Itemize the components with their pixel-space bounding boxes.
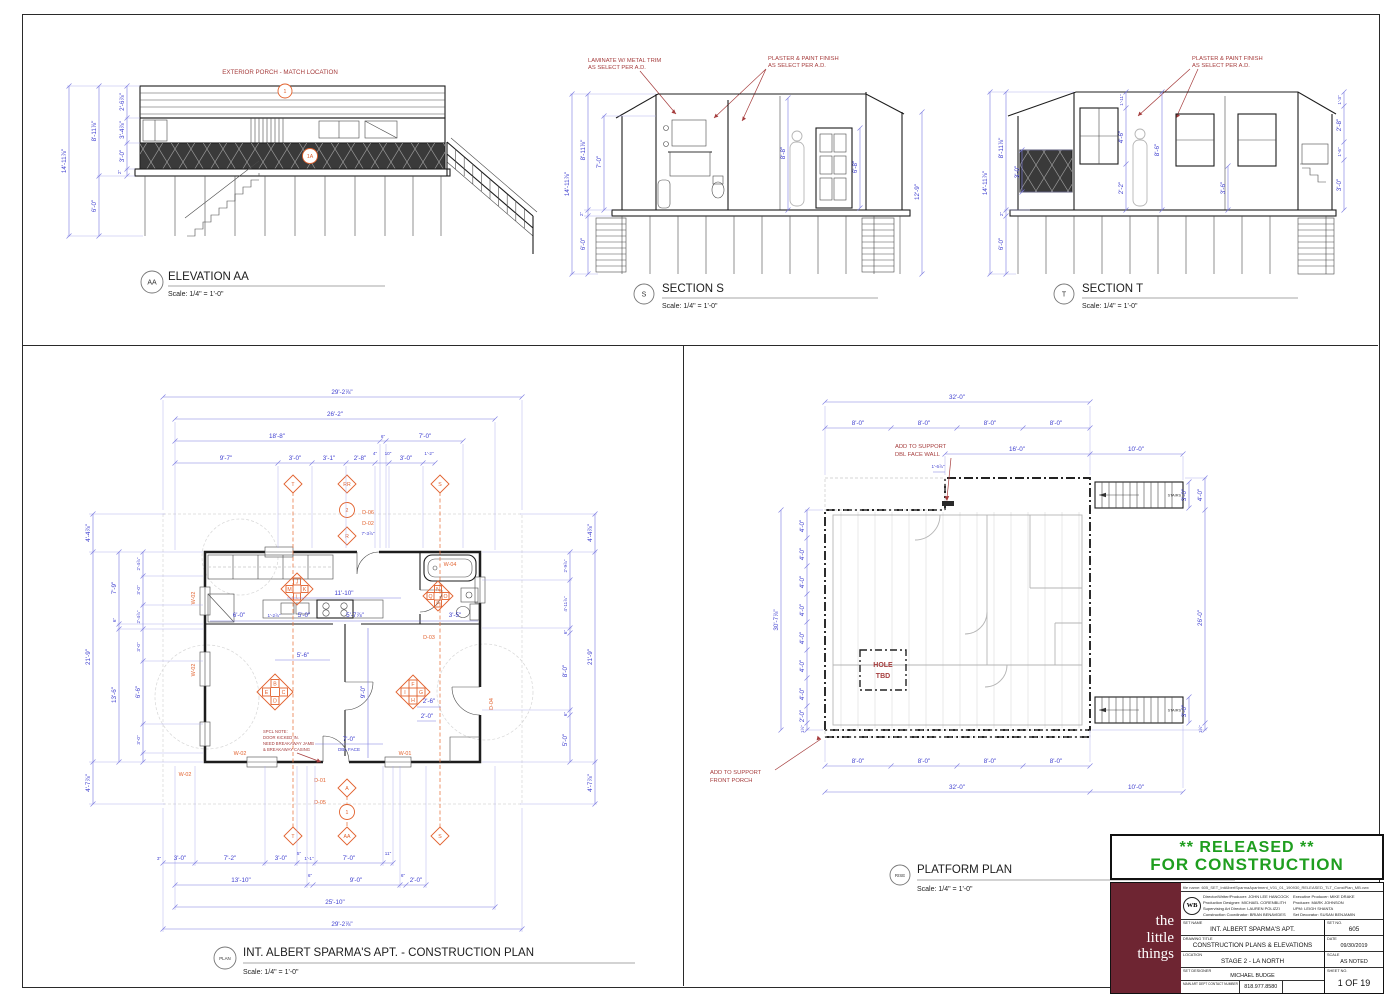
dim-label: 6'-6" — [135, 686, 142, 699]
dim-label: 13'-6" — [111, 687, 118, 703]
hole-tbd: HOLE TBD — [860, 650, 906, 690]
svg-text:C: C — [282, 690, 286, 696]
credits-right: Executive Producer: MIKE DRAKEProducer: … — [1293, 894, 1383, 918]
svg-text:HOLE: HOLE — [873, 662, 893, 669]
dim-label: 5'-0" — [298, 612, 311, 619]
released-line2: FOR CONSTRUCTION — [1150, 856, 1344, 874]
section-marker-s-bottom: S — [438, 834, 442, 840]
dim-label: 7'-0" — [343, 736, 356, 743]
note-plaster: PLASTER & PAINT FINISH — [768, 56, 839, 62]
dim-label: 3'-0" — [1336, 179, 1343, 192]
dim-label: 2'-4⅞" — [136, 610, 141, 623]
dim-label: 1'-11" — [1119, 94, 1124, 106]
dim-label: 29'-2⅞" — [331, 921, 352, 928]
released-stamp: ** RELEASED ** FOR CONSTRUCTION — [1110, 834, 1384, 880]
dim-label: 4'-0" — [799, 548, 806, 561]
drawing-scale: Scale: 1/4" = 1'-0" — [168, 291, 224, 298]
dim-label: 7'-0" — [343, 855, 356, 862]
svg-text:J: J — [296, 579, 299, 585]
dim-label: 11" — [385, 851, 392, 856]
elevation-marker-aa: AA — [344, 834, 351, 840]
dim-label: 2'-0" — [421, 713, 434, 720]
elevation-dimensions: 14'-11⅞" 8'-11⅞" 6'-0" 2'-6⅞" 3'-4⅞" 3'-… — [61, 84, 143, 239]
dim-label: 14'-11⅞" — [982, 171, 989, 195]
dim-label: 10" — [385, 451, 392, 456]
note-plaster: PLASTER & PAINT FINISH — [1192, 56, 1263, 62]
dim-label: 8'-6" — [1154, 144, 1161, 157]
dim-label: 4'-4⅞" — [587, 524, 594, 542]
section-t-linework — [1008, 92, 1336, 274]
note-laminate: LAMINATE W/ METAL TRIM — [588, 58, 661, 64]
drawing-title: SECTION S — [662, 283, 724, 295]
drawing-title: SECTION T — [1082, 283, 1143, 295]
field-scale: SCALEAS NOTED — [1325, 952, 1383, 968]
dim-label: 1'-1" — [304, 856, 314, 861]
dim-label: 2" — [579, 212, 584, 217]
added-support-block — [942, 501, 954, 506]
platform-dimensions: 32'-0" 8'-0" 8'-0" 8'-0" 8'-0" 16'-0" 10… — [773, 394, 1208, 795]
tag-d04: D-04 — [489, 698, 495, 710]
field-set-no: SET NO.605 — [1325, 920, 1383, 936]
note-front-porch: ADD TO SUPPORT — [710, 770, 762, 776]
panel-divider-horizontal — [22, 345, 1378, 346]
dim-label: 9'-7" — [220, 455, 233, 462]
dim-label: 4'-0" — [799, 660, 806, 673]
stairs-top: STAIRS — [1095, 482, 1183, 508]
dim-label: 30'-7⅞" — [773, 609, 780, 630]
dim-label: 3'-0" — [136, 642, 141, 652]
dim-label: 2'-6" — [423, 698, 436, 705]
dim-label: 32'-0" — [949, 784, 965, 791]
dim-label: 21'-9" — [85, 649, 92, 665]
note-plaster-2: AS SELECT PER A.D. — [1192, 63, 1250, 69]
dim-label: 18'-8" — [269, 433, 285, 440]
dim-label: 1½" — [1197, 725, 1203, 733]
dim-label: 10'-0" — [1128, 784, 1144, 791]
platform-plan-drawing: HOLE TBD STAIRS STAIRS ADD TO SUPPORT DB… — [695, 370, 1335, 910]
dim-label: 9'-0" — [350, 877, 363, 884]
drawing-tag: S — [642, 292, 647, 299]
dim-label: 12'-9" — [914, 184, 921, 200]
dim-label: 8'-0" — [562, 665, 569, 678]
detail-marker-a: A — [345, 786, 349, 792]
dim-label: 9'-0" — [360, 686, 367, 699]
drawing-title: ELEVATION AA — [168, 271, 249, 283]
dim-label: 6" — [308, 873, 313, 878]
drawing-tag: PLAN — [219, 956, 230, 961]
platform-outline — [825, 478, 1090, 737]
finish-cluster-bath: NQOP — [423, 581, 453, 611]
file-name: file name: 605_SET_IntAlbertSparmaApartm… — [1181, 883, 1383, 892]
dim-label: 4'-0" — [799, 576, 806, 589]
section-s-linework — [596, 92, 910, 274]
dim-label: 4'-0" — [799, 520, 806, 533]
dim-label: 6" — [563, 712, 568, 717]
detail-marker-r: R — [345, 534, 349, 540]
svg-text:I: I — [404, 690, 405, 696]
svg-text:SPCL NOTE:: SPCL NOTE: — [263, 729, 288, 734]
tag-w02: W-02 — [179, 772, 192, 778]
tag-w02: W-02 — [234, 751, 247, 757]
section-t-notes: PLASTER & PAINT FINISH AS SELECT PER A.D… — [1138, 56, 1263, 118]
drawing-scale: Scale: 1/4" = 1'-0" — [662, 303, 718, 310]
svg-text:N: N — [436, 587, 440, 593]
dim-label: DBL FACE — [338, 747, 360, 752]
note-plaster-2: AS SELECT PER A.D. — [768, 63, 826, 69]
dim-label: 1'-2" — [424, 451, 434, 456]
section-s-notes: LAMINATE W/ METAL TRIM AS SELECT PER A.D… — [588, 56, 839, 121]
dim-label: 25'-10" — [325, 899, 345, 906]
dim-label: 8'-8" — [780, 147, 787, 160]
dim-label: 6" — [112, 618, 117, 623]
dim-label: 2'-0" — [799, 710, 806, 723]
dim-label: 2" — [117, 170, 122, 175]
dim-label: 4'-0" — [799, 632, 806, 645]
drawing-tag: T — [1062, 292, 1067, 299]
svg-text:Q: Q — [428, 594, 432, 600]
svg-text:TBD: TBD — [876, 673, 890, 680]
dim-label: 8'-0" — [918, 420, 931, 427]
elevation-linework — [135, 86, 537, 254]
dim-label: 8'-11⅞" — [580, 140, 587, 161]
dim-label: 1½" — [799, 725, 805, 733]
elevation-aa-drawing: EXTERIOR PORCH - MATCH LOCATION 1 1A 14'… — [55, 58, 555, 313]
section-s-title: S SECTION S Scale: 1/4" = 1'-0" — [634, 283, 878, 310]
dim-label: 8'-0" — [984, 758, 997, 765]
svg-text:K: K — [303, 587, 307, 593]
dim-label: 3'-0" — [289, 455, 302, 462]
dim-label: 2'-9⅞" — [563, 559, 568, 572]
dim-label: 6'-8" — [852, 161, 859, 174]
field-date: DATE09/30/2019 — [1325, 936, 1383, 952]
svg-text:DOOR KICKED IN.: DOOR KICKED IN. — [263, 735, 299, 740]
dim-label: 2'-8" — [1336, 119, 1343, 132]
dim-label: 3'-5" — [449, 612, 462, 619]
dim-label: 3'-0" — [136, 585, 141, 595]
dim-label: 7'-0" — [419, 433, 432, 440]
field-sheet-no: SHEET NO.1 OF 19 — [1325, 968, 1383, 992]
dim-label: 7'-9" — [111, 582, 118, 595]
svg-text:F: F — [411, 682, 414, 688]
panel-divider-vertical — [683, 345, 684, 986]
tag-d02: D-02 — [362, 521, 374, 527]
drawing-scale: Scale: 1/4" = 1'-0" — [243, 969, 299, 976]
dim-label: 1'-6" — [1337, 147, 1342, 157]
dim-label: 13'-10" — [231, 877, 251, 884]
svg-text:& BREAKAWAY CASING: & BREAKAWAY CASING — [263, 747, 310, 752]
dim-label: 6'-0" — [91, 200, 98, 213]
dim-label: 11'-10" — [334, 590, 353, 597]
dim-label: 6" — [563, 630, 568, 635]
dim-label: 1'-6⅞" — [932, 464, 945, 469]
title-block: ** RELEASED ** FOR CONSTRUCTION the litt… — [1110, 834, 1384, 994]
svg-text:L: L — [296, 594, 299, 600]
svg-text:NEED BREAKAWAY JAMB: NEED BREAKAWAY JAMB — [263, 741, 314, 746]
released-line1: ** RELEASED ** — [1180, 840, 1315, 857]
dim-label: 26'-0" — [1197, 610, 1204, 626]
drawing-scale: Scale: 1/4" = 1'-0" — [1082, 303, 1138, 310]
dim-label: 10'-0" — [1128, 446, 1144, 453]
dim-label: 4'-4⅞" — [85, 524, 92, 542]
construction-plan-drawing: T RR 2 R S A 1 AA T S JMKL NQOP BECD FIG… — [35, 352, 665, 992]
dim-label: 5" — [297, 851, 302, 856]
note-dbl-face: ADD TO SUPPORT — [895, 444, 947, 450]
drawing-scale: Scale: 1/4" = 1'-0" — [917, 886, 973, 893]
detail-marker-rr: RR — [343, 482, 351, 488]
note-front-porch-2: FRONT PORCH — [710, 778, 752, 784]
dim-label: 3'-0" — [1181, 489, 1188, 502]
tag-w01: W-01 — [399, 751, 412, 757]
tag-d01: D-01 — [314, 778, 326, 784]
dim-label: 4'-7⅞" — [85, 774, 92, 792]
field-contact: MAIN ART DEPT CONTACT NUMBER 818.977.858… — [1181, 981, 1324, 993]
dim-label: 3'-4⅞" — [119, 121, 126, 139]
tag-d06: D-06 — [362, 510, 374, 516]
dim-label: 3'-0" — [174, 855, 187, 862]
dim-label: 4'-11⅞" — [563, 596, 568, 612]
dim-label: 21'-9" — [587, 649, 594, 665]
credits-row: WB Director/Writer/Producer: JOHN LEE HA… — [1181, 892, 1383, 920]
dim-label: 5'-7⅞" — [346, 612, 364, 619]
dim-label: 3'-0" — [119, 150, 126, 163]
platform-notes: ADD TO SUPPORT DBL FACE WALL ADD TO SUPP… — [710, 444, 951, 784]
dim-label: 3'-0" — [1181, 705, 1188, 718]
dim-label: 32'-0" — [949, 394, 965, 401]
tag-d03: D-03 — [423, 635, 435, 641]
dim-label: 3'-0" — [400, 455, 413, 462]
platform-joists — [841, 512, 1079, 728]
dim-label: 2" — [999, 212, 1004, 217]
dim-label: 2'-0" — [410, 877, 423, 884]
section-t-title: T SECTION T Scale: 1/4" = 1'-0" — [1054, 283, 1298, 310]
dim-label: 3'-0" — [275, 855, 288, 862]
section-t-drawing: PLASTER & PAINT FINISH AS SELECT PER A.D… — [980, 48, 1360, 310]
tag-w02: W-02 — [191, 592, 197, 605]
stairs-label: STAIRS — [1168, 494, 1182, 498]
dim-label: 3" — [157, 856, 162, 861]
construction-plan-title: PLAN INT. ALBERT SPARMA'S APT. - CONSTRU… — [214, 947, 635, 976]
svg-text:P: P — [436, 601, 440, 607]
svg-text:M: M — [287, 587, 291, 593]
dim-label: 3'-0" — [136, 735, 141, 745]
dim-label: 6'-0" — [580, 238, 587, 251]
dim-label: 8'-0" — [984, 420, 997, 427]
tag-d05: D-05 — [314, 800, 326, 806]
dim-label: 8'-11⅞" — [998, 138, 1005, 159]
dim-label: 5'-0" — [562, 734, 569, 747]
dim-label: 4" — [373, 451, 378, 456]
dim-label: 7'-3⅞" — [362, 531, 375, 536]
note-exterior-porch: EXTERIOR PORCH - MATCH LOCATION — [222, 69, 338, 76]
dim-label: 26'-2" — [327, 411, 343, 418]
tag-w04: W-04 — [444, 562, 457, 568]
dim-label: 8'-0" — [1050, 420, 1063, 427]
dim-label: 4'-6" — [1118, 131, 1125, 144]
dim-label: 3'-1" — [323, 455, 336, 462]
field-set-designer: SET DESIGNERMICHAEL BUDGE — [1181, 968, 1324, 981]
dim-label: 1'-3" — [1337, 95, 1342, 105]
dim-label: 7'-0" — [596, 156, 603, 169]
drawing-tag: RISE — [895, 873, 905, 878]
dim-label: 4'-0" — [799, 688, 806, 701]
plan-dimensions: 29'-2⅞" 26'-2" 18'-8" 6" 7'-0" 9'-7" 3'-… — [85, 389, 598, 932]
dim-label: 7'-2" — [224, 855, 237, 862]
svg-text:G: G — [419, 690, 423, 696]
elevation-title: AA ELEVATION AA Scale: 1/4" = 1'-0" — [141, 271, 385, 298]
dim-label: 2'-4⅞" — [136, 557, 141, 570]
drawing-title: INT. ALBERT SPARMA'S APT. - CONSTRUCTION… — [243, 947, 534, 959]
dim-label: 16'-0" — [1009, 446, 1025, 453]
dim-label: 14'-11⅞" — [61, 149, 68, 173]
svg-text:B: B — [273, 681, 277, 687]
dim-label: 8'-0" — [1050, 758, 1063, 765]
finish-cluster-living: BECD — [257, 674, 293, 710]
dim-label: 5'-6" — [297, 652, 310, 659]
credits-left: Director/Writer/Producer: JOHN LEE HANCO… — [1203, 894, 1293, 918]
field-location: LOCATIONSTAGE 2 - LA NORTH — [1181, 952, 1324, 968]
field-drawing-title: DRAWING TITLECONSTRUCTION PLANS & ELEVAT… — [1181, 936, 1324, 952]
field-set-name: SET NAMEINT. ALBERT SPARMA'S APT. — [1181, 920, 1324, 936]
dim-label: 4'-0" — [1197, 489, 1204, 502]
dim-label: 1'-2⅞" — [268, 613, 281, 618]
dim-label: 8'-0" — [918, 758, 931, 765]
dim-label: 4'-7⅞" — [587, 774, 594, 792]
dim-label: 6" — [381, 434, 386, 439]
tag-w02: W-02 — [191, 664, 197, 677]
dim-label: 14'-11⅞" — [564, 172, 571, 196]
dim-label: 8'-0" — [852, 758, 865, 765]
stairs-label: STAIRS — [1168, 709, 1182, 713]
svg-text:D: D — [273, 698, 277, 704]
section-marker-s: S — [438, 482, 442, 488]
dim-label: 6'-0" — [233, 612, 246, 619]
dim-label: 3'-0" — [1014, 166, 1021, 179]
little-things-logo: the little things — [1111, 883, 1181, 993]
dim-label: 6'-0" — [998, 238, 1005, 251]
note-laminate-2: AS SELECT PER A.D. — [588, 65, 646, 71]
svg-text:O: O — [443, 594, 447, 600]
wb-logo: WB — [1181, 897, 1203, 915]
svg-text:H: H — [411, 698, 415, 704]
dim-label: 2'-8" — [354, 455, 367, 462]
dim-label: 2'-6⅞" — [119, 93, 126, 111]
drawing-tag: AA — [147, 280, 157, 287]
dim-label: 29'-2⅞" — [331, 389, 352, 396]
dim-label: 6" — [401, 873, 406, 878]
drawing-title: PLATFORM PLAN — [917, 864, 1012, 876]
note-dbl-face-2: DBL FACE WALL — [895, 452, 941, 458]
dim-label: 2'-2" — [1118, 182, 1125, 195]
svg-text:E: E — [265, 690, 269, 696]
dim-label: 4'-0" — [799, 604, 806, 617]
section-s-drawing: LAMINATE W/ METAL TRIM AS SELECT PER A.D… — [560, 48, 940, 310]
dim-label: 3'-6" — [1220, 182, 1227, 195]
marker-1a-label: 1A — [307, 154, 314, 160]
dim-label: 8'-0" — [852, 420, 865, 427]
detail-marker-1: 1 — [346, 810, 349, 816]
dim-label: 8'-11⅞" — [91, 121, 98, 142]
marker-1-label: 1 — [284, 89, 287, 95]
stairs-bottom: STAIRS — [1095, 697, 1183, 723]
